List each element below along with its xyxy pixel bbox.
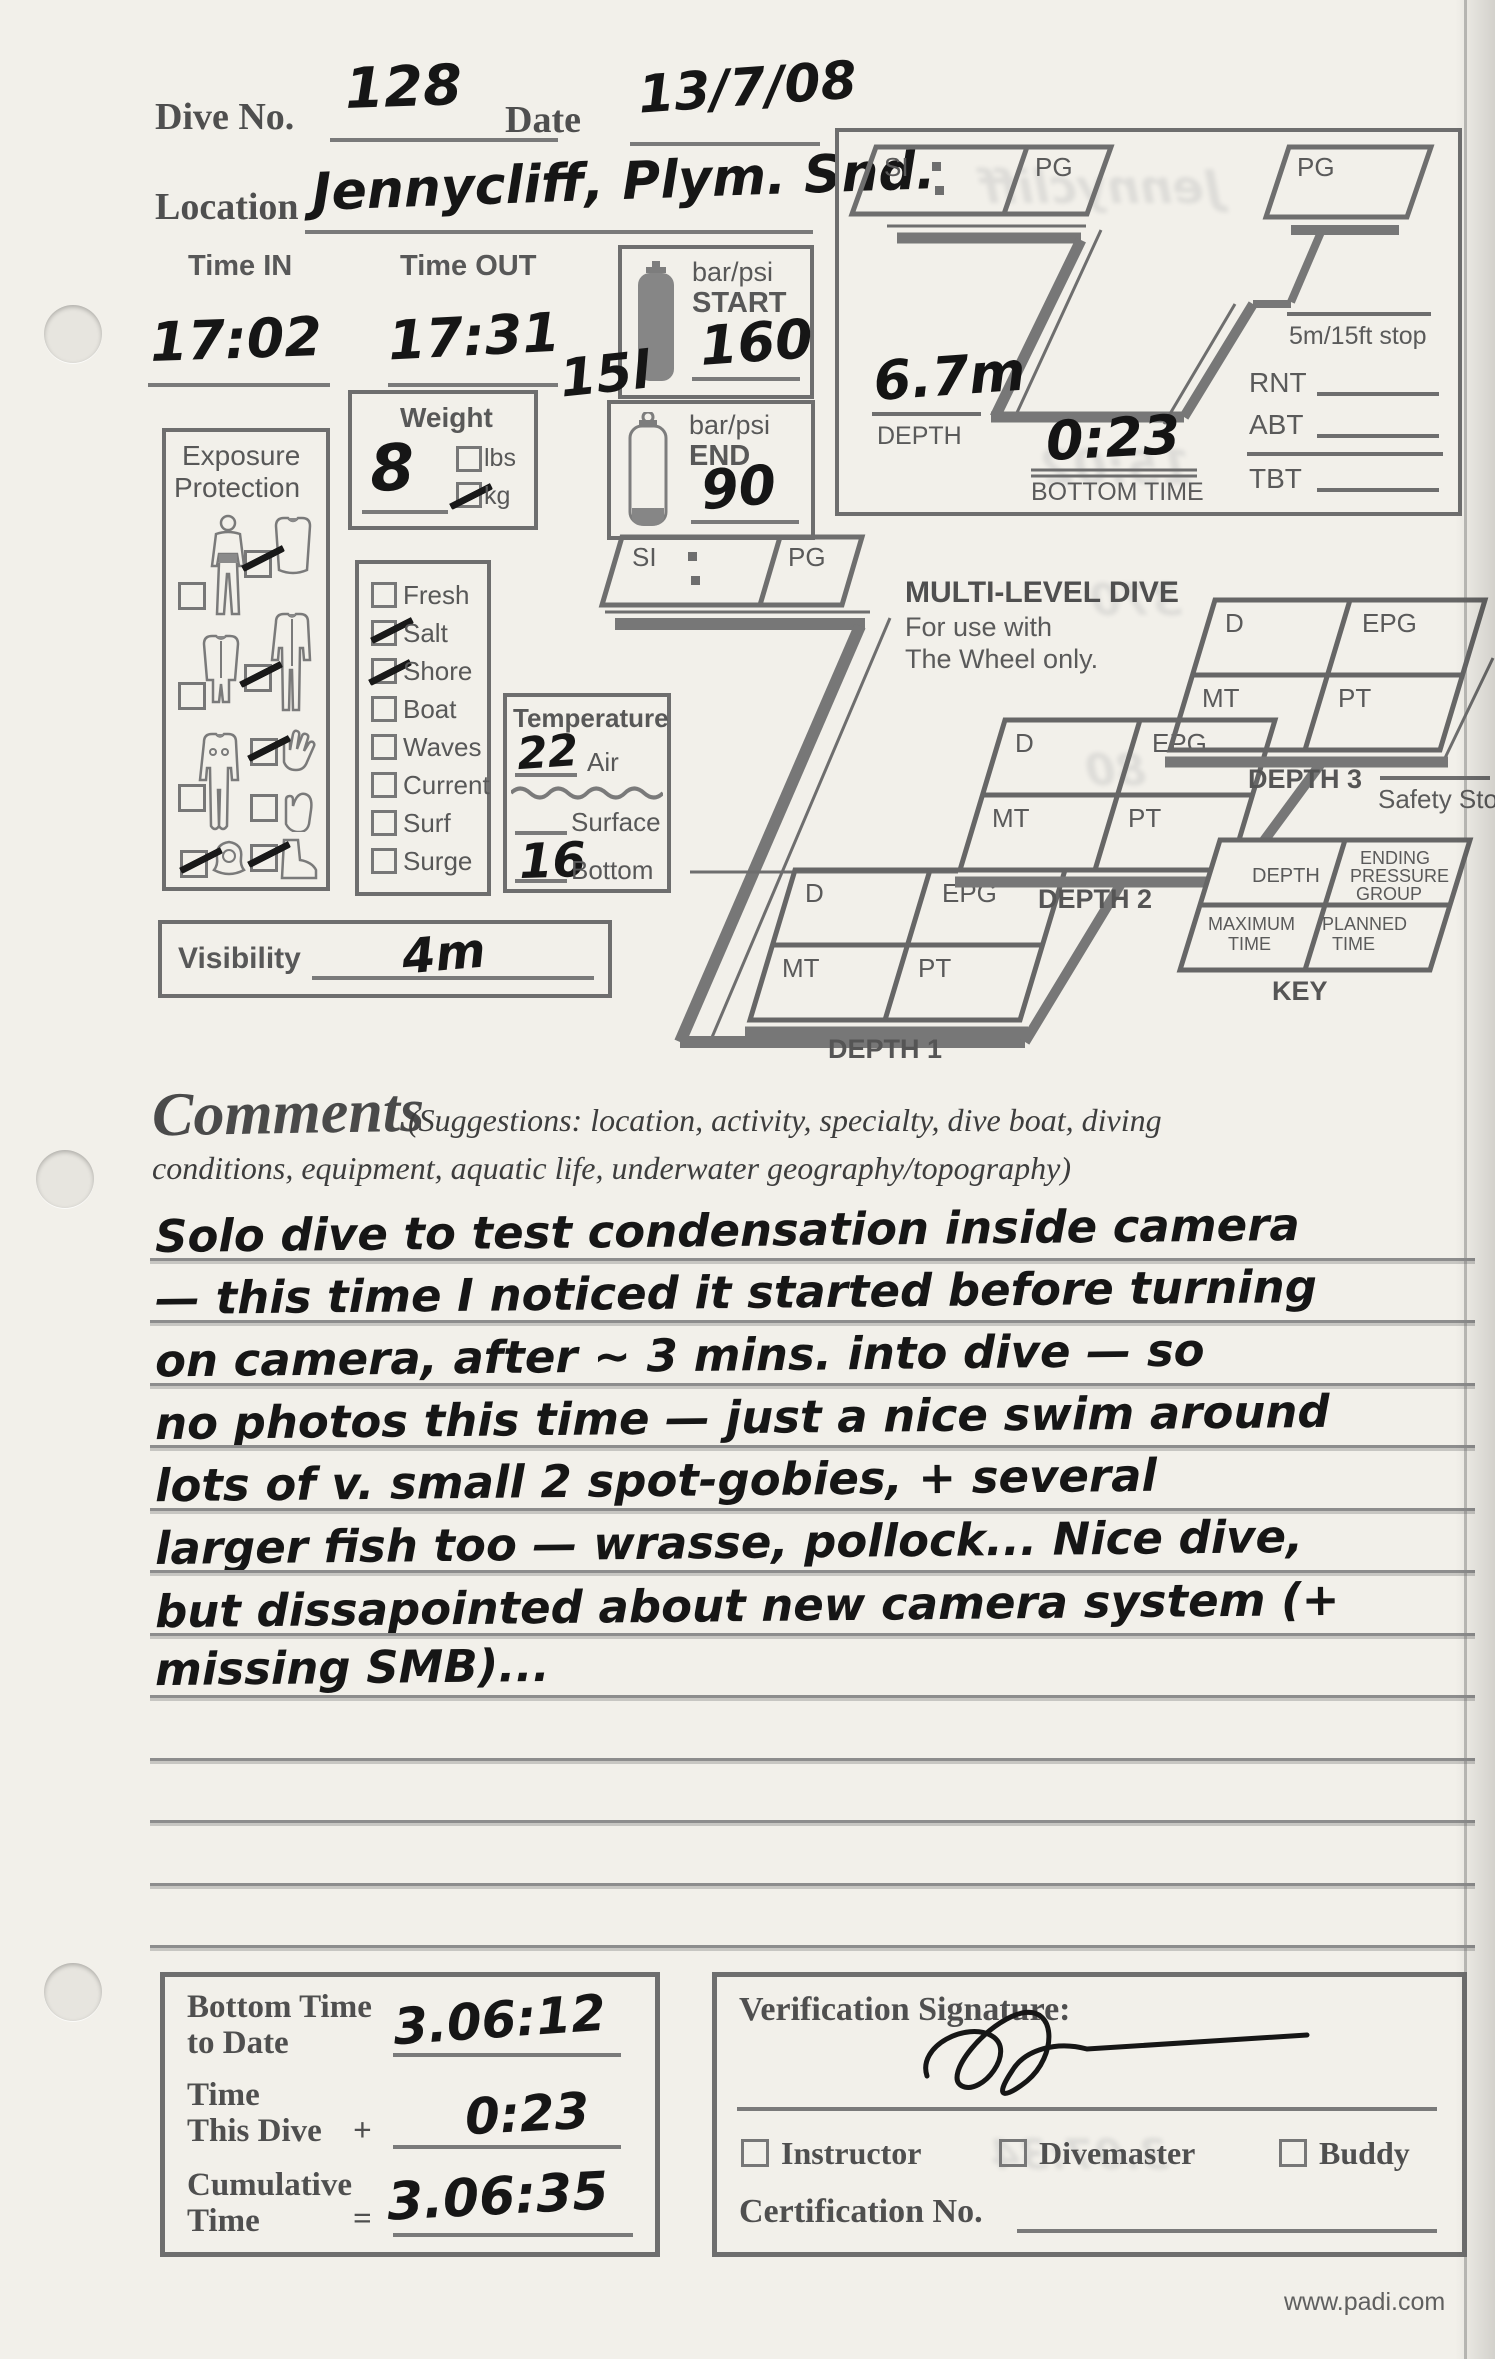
comment-rule bbox=[150, 1445, 1475, 1448]
si-label: SI bbox=[884, 152, 909, 182]
tank-start-value: 160 bbox=[698, 307, 815, 378]
dive-profile-diagram: SI PG PG 5m/15ft stop RNT ABT bbox=[839, 132, 1458, 512]
bottom-time-value: 0:23 bbox=[1044, 403, 1181, 473]
depth2-epg: EPG bbox=[1152, 728, 1207, 758]
multi-level-subtitle-1: For use with bbox=[905, 612, 1052, 642]
divemaster-label: Divemaster bbox=[1039, 2135, 1195, 2172]
water-salt-label: Salt bbox=[403, 618, 448, 649]
time-this-dive-value: 0:23 bbox=[464, 2082, 591, 2146]
key-label: KEY bbox=[1272, 976, 1328, 1006]
water-type-box: Fresh Salt Shore Boat Waves Current Surf… bbox=[355, 560, 491, 896]
depth1-grid: D EPG MT PT DEPTH 1 bbox=[745, 870, 1065, 1060]
cumulative-time-label-1: Cumulative bbox=[187, 2167, 352, 2204]
comment-rule bbox=[150, 1758, 1475, 1761]
abt-label: ABT bbox=[1249, 409, 1303, 440]
visibility-box: Visibility 4m bbox=[158, 920, 612, 998]
depth3-mt: MT bbox=[1202, 683, 1240, 713]
dive-profile-box: SI PG PG 5m/15ft stop RNT ABT bbox=[835, 128, 1462, 516]
comment-line: larger fish too — wrasse, pollock... Nic… bbox=[155, 1510, 1304, 1575]
water-waves-checkbox[interactable] bbox=[371, 734, 397, 760]
date-label: Date bbox=[505, 98, 581, 142]
comment-rule bbox=[150, 1695, 1475, 1698]
water-fresh-label: Fresh bbox=[403, 580, 469, 611]
bottom-time-to-date-label-2: to Date bbox=[187, 2025, 289, 2062]
water-surge-label: Surge bbox=[403, 846, 472, 877]
location-line bbox=[305, 230, 813, 234]
exposure-swimsuit-checkbox[interactable] bbox=[178, 582, 206, 610]
cumulative-time-value: 3.06:35 bbox=[386, 2161, 610, 2233]
water-fresh-checkbox[interactable] bbox=[371, 582, 397, 608]
weight-box: Weight 8 lbs kg bbox=[348, 390, 538, 530]
buddy-checkbox[interactable] bbox=[1279, 2139, 1307, 2167]
time-this-dive-line bbox=[393, 2145, 621, 2149]
comment-line: but dissapointed about new camera system… bbox=[155, 1573, 1340, 1638]
key-plan-2: TIME bbox=[1332, 934, 1375, 954]
cumulative-time-line bbox=[393, 2233, 633, 2237]
comment-rule bbox=[150, 1883, 1475, 1886]
key-plan-1: PLANNED bbox=[1322, 914, 1407, 934]
safety-stop-5m-label: 5m/15ft stop bbox=[1289, 322, 1427, 350]
comment-line: — this time I noticed it started before … bbox=[155, 1260, 1317, 1325]
comments-suggestions-1: (Suggestions: location, activity, specia… bbox=[408, 1102, 1162, 1139]
divemaster-checkbox[interactable] bbox=[999, 2139, 1027, 2167]
rnt-label: RNT bbox=[1249, 367, 1307, 398]
comment-line: no photos this time — just a nice swim a… bbox=[155, 1385, 1330, 1450]
hole-punch bbox=[36, 1150, 94, 1208]
depth2-mt: MT bbox=[992, 803, 1030, 833]
hole-punch bbox=[44, 305, 102, 363]
dive-no-label: Dive No. bbox=[155, 95, 294, 139]
weight-line bbox=[362, 510, 448, 514]
padi-website: www.padi.com bbox=[1284, 2288, 1445, 2317]
water-boat-label: Boat bbox=[403, 694, 457, 725]
depth3-pt: PT bbox=[1338, 683, 1371, 713]
pg2-label: PG bbox=[1297, 152, 1335, 182]
visibility-label: Visibility bbox=[178, 942, 301, 976]
time-this-dive-label-1: Time bbox=[187, 2077, 260, 2114]
exposure-title-2: Protection bbox=[174, 472, 300, 504]
plus-sign: + bbox=[353, 2113, 372, 2150]
dive-no-value: 128 bbox=[344, 53, 463, 122]
comments-title: Comments bbox=[151, 1076, 424, 1152]
depth1-label: DEPTH 1 bbox=[828, 1034, 942, 1060]
pg-label: PG bbox=[1035, 152, 1073, 182]
depth3-epg: EPG bbox=[1362, 608, 1417, 638]
tank-start-line bbox=[692, 377, 800, 381]
weight-value: 8 bbox=[368, 431, 416, 507]
depth1-mt: MT bbox=[782, 953, 820, 983]
weight-lbs-label: lbs bbox=[484, 444, 516, 473]
exposure-mitts-checkbox[interactable] bbox=[250, 794, 278, 822]
bottom-time-to-date-value: 3.06:12 bbox=[391, 1984, 607, 2057]
depth-label: DEPTH bbox=[877, 422, 962, 450]
water-boat-checkbox[interactable] bbox=[371, 696, 397, 722]
weight-kg-label: kg bbox=[484, 482, 510, 511]
tank-end-box: bar/psi END 90 bbox=[607, 400, 815, 540]
tbt-label: TBT bbox=[1249, 463, 1302, 494]
instructor-label: Instructor bbox=[781, 2135, 921, 2172]
multi-level-subtitle-2: The Wheel only. bbox=[905, 644, 1098, 674]
depth-value: 6.7m bbox=[872, 340, 1028, 413]
tank-icon bbox=[625, 412, 671, 528]
water-waves-label: Waves bbox=[403, 732, 482, 763]
tank-end-value: 90 bbox=[698, 453, 778, 522]
equals-sign: = bbox=[353, 2201, 372, 2238]
signature-line bbox=[737, 2107, 1437, 2111]
water-current-checkbox[interactable] bbox=[371, 772, 397, 798]
comment-line: Solo dive to test condensation inside ca… bbox=[155, 1198, 1300, 1263]
tank-end-unit: bar/psi bbox=[689, 410, 770, 441]
comment-rule bbox=[150, 1945, 1475, 1948]
si-label: SI bbox=[632, 542, 657, 572]
key-epg-2: PRESSURE bbox=[1350, 866, 1449, 886]
key-max-2: TIME bbox=[1228, 934, 1271, 954]
time-out-label: Time OUT bbox=[400, 250, 536, 283]
exposure-drysuit-checkbox[interactable] bbox=[178, 784, 206, 812]
date-value: 13/7/08 bbox=[636, 50, 859, 125]
multi-level-dive-diagram: SI PG MULTI-LEVEL DIVE For use with The … bbox=[560, 530, 1495, 1060]
totals-box: Bottom Time to Date 3.06:12 Time This Di… bbox=[160, 1972, 660, 2257]
time-out-line bbox=[388, 383, 558, 387]
depth1-d: D bbox=[805, 878, 824, 908]
comment-line: on camera, after ~ 3 mins. into dive — s… bbox=[155, 1324, 1205, 1388]
safety-stop-label: Safety Stop bbox=[1378, 784, 1495, 814]
depth2-d: D bbox=[1015, 728, 1034, 758]
mitt-icon bbox=[280, 784, 316, 832]
visibility-line bbox=[312, 976, 594, 980]
depth3-d: D bbox=[1225, 608, 1244, 638]
exposure-shorty-checkbox[interactable] bbox=[178, 682, 206, 710]
depth2-pt: PT bbox=[1128, 803, 1161, 833]
water-surge-checkbox[interactable] bbox=[371, 848, 397, 874]
pg-label: PG bbox=[788, 542, 826, 572]
comment-rule bbox=[150, 1633, 1475, 1636]
certification-no-label: Certification No. bbox=[739, 2193, 983, 2231]
hole-punch bbox=[44, 1963, 102, 2021]
comment-line: missing SMB)... bbox=[155, 1639, 550, 1696]
water-shore-label: Shore bbox=[403, 656, 472, 687]
buddy-label: Buddy bbox=[1319, 2135, 1410, 2172]
weight-label: Weight bbox=[400, 402, 493, 434]
instructor-checkbox[interactable] bbox=[741, 2139, 769, 2167]
water-current-label: Current bbox=[403, 770, 490, 801]
dive-log-page: Jennycliff 15:02 370 80 3.07:34 Dive No.… bbox=[0, 0, 1495, 2359]
key-grid: DEPTH ENDING PRESSURE GROUP MAXIMUM TIME… bbox=[1180, 840, 1470, 1006]
tank-start-unit: bar/psi bbox=[692, 257, 773, 288]
comment-rule bbox=[150, 1820, 1475, 1823]
time-in-label: Time IN bbox=[188, 250, 292, 283]
bottom-time-to-date-label-1: Bottom Time bbox=[187, 1989, 372, 2026]
time-in-line bbox=[148, 383, 330, 387]
depth2-label: DEPTH 2 bbox=[1038, 884, 1152, 914]
water-surf-checkbox[interactable] bbox=[371, 810, 397, 836]
tank-end-line bbox=[691, 520, 799, 524]
exposure-title-1: Exposure bbox=[182, 440, 300, 472]
multi-level-title: MULTI-LEVEL DIVE bbox=[905, 576, 1179, 609]
location-label: Location bbox=[155, 185, 299, 229]
verification-box: Verification Signature: Instructor Divem… bbox=[712, 1972, 1467, 2257]
depth1-pt: PT bbox=[918, 953, 951, 983]
comments-suggestions-2: conditions, equipment, aquatic life, und… bbox=[152, 1150, 1071, 1187]
water-surf-label: Surf bbox=[403, 808, 451, 839]
depth3-grid: D EPG MT PT DEPTH 3 bbox=[1165, 600, 1485, 794]
time-out-value: 17:31 bbox=[386, 301, 561, 373]
cumulative-time-label-2: Time bbox=[187, 2203, 260, 2240]
bottom-time-label: BOTTOM TIME bbox=[1031, 478, 1204, 506]
time-this-dive-label-2: This Dive bbox=[187, 2113, 322, 2150]
certification-no-line bbox=[1017, 2229, 1437, 2233]
bottom-time-line bbox=[393, 2053, 621, 2057]
key-depth: DEPTH bbox=[1252, 865, 1320, 887]
signature-scribble bbox=[907, 2001, 1327, 2111]
comment-line: lots of v. small 2 spot-gobies, + severa… bbox=[155, 1449, 1157, 1512]
exposure-box: Exposure Protection bbox=[162, 428, 330, 891]
key-max-1: MAXIMUM bbox=[1208, 914, 1295, 934]
key-epg-3: GROUP bbox=[1356, 884, 1422, 904]
depth3-label: DEPTH 3 bbox=[1248, 764, 1362, 794]
time-in-value: 17:02 bbox=[149, 305, 323, 374]
comment-rule bbox=[150, 1320, 1475, 1323]
key-epg-1: ENDING bbox=[1360, 848, 1430, 868]
